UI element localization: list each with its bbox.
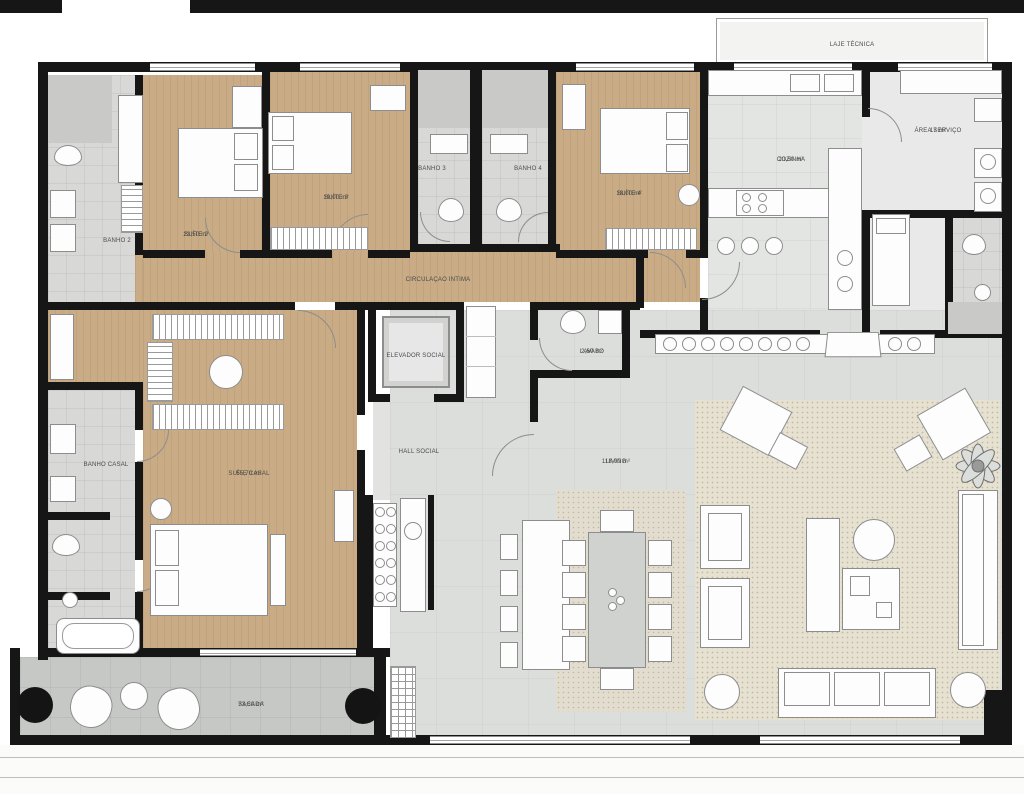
dining-chair (648, 604, 672, 630)
room-name: CIRCULAÇÃO ÍNTIMA (406, 276, 471, 284)
stool (717, 237, 735, 255)
basket (663, 337, 677, 351)
toilet-symbol (54, 145, 82, 166)
burner (758, 193, 767, 202)
pantry-shelves (466, 306, 496, 398)
cabinet (974, 98, 1002, 122)
room-area: 73,50 m² (238, 701, 263, 709)
wall (622, 302, 630, 378)
closet-casal-mid (152, 404, 284, 430)
closet-casal-left (147, 342, 173, 402)
stool (500, 534, 518, 560)
wall (548, 62, 556, 252)
window (300, 63, 400, 71)
wall (357, 450, 365, 655)
shower-banho-3 (418, 70, 470, 128)
sink-symbol (50, 224, 76, 252)
wall (556, 250, 648, 258)
planter-pot (17, 687, 53, 723)
window (576, 63, 694, 71)
wall (700, 62, 708, 258)
room-area: 23,50 m² (183, 231, 208, 239)
dining-chair (648, 572, 672, 598)
floor-plan: LAJE TÉCNICA BANHO 2 SUÍTE 2 23,50 m² SU… (0, 0, 1024, 794)
wall (1002, 62, 1012, 745)
wall (335, 302, 368, 310)
sink-symbol (50, 424, 76, 454)
kitchen-sink (824, 74, 854, 92)
wall (686, 250, 700, 258)
wall (984, 690, 1012, 740)
wall (368, 394, 390, 402)
dining-chair (648, 636, 672, 662)
balcony-table (120, 682, 148, 710)
dining-chair (562, 572, 586, 598)
wall (636, 252, 644, 308)
room-area: 118,00 m² (602, 458, 630, 466)
page-top-bar-right (190, 0, 1024, 13)
toilet-symbol (496, 198, 522, 222)
wall (135, 382, 143, 430)
stool (741, 237, 759, 255)
closet-casal-top (152, 314, 284, 340)
side-table (678, 184, 700, 206)
rack-hole (386, 575, 396, 585)
island-sink (837, 276, 853, 292)
wall (368, 250, 410, 258)
burner (758, 204, 767, 213)
toilet-symbol (560, 310, 586, 334)
room-name: BANHO 2 (103, 237, 131, 245)
toilet-symbol (438, 198, 464, 222)
pouf (950, 672, 986, 708)
wall (10, 735, 382, 745)
sink-symbol (598, 310, 622, 334)
wall (368, 302, 376, 402)
wall (530, 378, 538, 422)
stool (500, 606, 518, 632)
armchair-cushion (708, 586, 742, 640)
wall (240, 250, 332, 258)
plant-symbol (952, 440, 1004, 492)
washer-door (980, 154, 996, 170)
room-name: BANHO CASAL (84, 461, 129, 469)
wall (410, 244, 560, 252)
shower-banho-2 (48, 75, 112, 143)
dryer-door (980, 188, 996, 204)
dining-chair (648, 540, 672, 566)
stool (765, 237, 783, 255)
room-area: 19,00 m² (323, 194, 348, 202)
basket (888, 337, 902, 351)
rack-hole (375, 558, 385, 568)
toilet-symbol (962, 234, 986, 255)
wall (530, 302, 538, 340)
wall (410, 62, 418, 252)
wall (38, 302, 295, 310)
rack-hole (386, 507, 396, 517)
wall (38, 62, 48, 660)
closet-suite-3 (270, 227, 368, 250)
wall (530, 370, 630, 378)
closet-shelves (50, 314, 74, 380)
pillow (234, 164, 258, 191)
sink-symbol (430, 134, 468, 154)
dining-chair (562, 636, 586, 662)
table-decor (616, 596, 625, 605)
window (760, 736, 960, 744)
dining-chair (600, 668, 634, 690)
sink-symbol (974, 284, 991, 301)
sofa-seat (884, 672, 930, 706)
room-area: 55,70 m² (236, 470, 261, 478)
wardrobe-suite-2 (118, 95, 143, 183)
burner (742, 193, 751, 202)
rack-hole (375, 592, 385, 602)
bar-counter (400, 498, 426, 612)
basket (739, 337, 753, 351)
terrace-line (0, 757, 1024, 758)
wall (434, 394, 464, 402)
room-name: BANHO 3 (418, 165, 446, 173)
pillow (272, 145, 294, 170)
pillow (155, 530, 179, 566)
table-decor (876, 602, 892, 618)
wall (38, 512, 110, 520)
bed-bench (270, 534, 286, 606)
desk-suite-3 (370, 85, 406, 111)
page-top-bar-left (0, 0, 62, 13)
stool (500, 570, 518, 596)
desk-suite-4 (562, 84, 586, 130)
wall (470, 62, 482, 252)
dining-chair (562, 540, 586, 566)
bathtub-inner (62, 623, 134, 649)
room-name: LAJE TÉCNICA (830, 41, 875, 49)
ceiling-fan (150, 498, 172, 520)
planter-pot (345, 688, 381, 724)
shower-banho-4 (482, 70, 548, 128)
service-counter (900, 70, 1002, 94)
basket (758, 337, 772, 351)
wall (38, 382, 143, 390)
room-name: ELEVADOR SOCIAL (387, 352, 446, 360)
rack-hole (386, 524, 396, 534)
room-area: 20,50 m² (778, 156, 803, 164)
dining-chair (562, 604, 586, 630)
pillow (272, 116, 294, 141)
desk-suite-2 (232, 86, 262, 128)
window-suite-casal (200, 649, 356, 656)
basket (720, 337, 734, 351)
room-area: 17 m² (930, 127, 946, 135)
shelf-line (466, 366, 496, 367)
kitchen-sink (790, 74, 820, 92)
table-decor (850, 576, 870, 596)
wall (862, 210, 870, 338)
pillow (155, 570, 179, 606)
basket (682, 337, 696, 351)
bar-sink (404, 522, 422, 540)
shower-banho-servico (948, 302, 1002, 334)
wall (368, 302, 464, 310)
terrace-line (0, 777, 1024, 778)
table-decor (608, 588, 617, 597)
basket (907, 337, 921, 351)
island-sink (837, 250, 853, 266)
pillow (666, 112, 688, 140)
shelf-line (466, 336, 496, 337)
armchair-cushion (708, 513, 742, 561)
pillow (666, 144, 688, 172)
sink-symbol (490, 134, 528, 154)
planter-grid (390, 666, 416, 738)
room-name: HALL SOCIAL (399, 448, 440, 456)
rack-hole (375, 507, 385, 517)
basket (777, 337, 791, 351)
basket (701, 337, 715, 351)
console-table (825, 332, 882, 357)
closet-suite-2 (121, 185, 143, 233)
rack-hole (386, 541, 396, 551)
room-area: 18,00 m² (616, 190, 641, 198)
stool (500, 642, 518, 668)
chaise (806, 518, 840, 632)
wall (143, 250, 205, 258)
round-side-table (853, 519, 895, 561)
tv-cabinet (334, 490, 354, 542)
wall (365, 495, 373, 657)
sofa-seat (962, 494, 984, 646)
closet-suite-4 (605, 228, 697, 250)
table-decor (608, 602, 617, 611)
room-name: BANHO 4 (514, 165, 542, 173)
rack-hole (375, 575, 385, 585)
window (150, 63, 255, 71)
wall (135, 462, 143, 560)
wine-rack (373, 503, 397, 607)
toilet-symbol (52, 534, 80, 556)
window (430, 736, 690, 744)
sink-symbol (50, 190, 76, 218)
pillow (876, 218, 906, 234)
rack-hole (375, 524, 385, 534)
burner (742, 204, 751, 213)
sink-symbol (50, 476, 76, 502)
dining-chair (600, 510, 634, 532)
wall (456, 302, 464, 402)
wall (428, 495, 434, 610)
shower-head (62, 592, 78, 608)
pouf (704, 674, 740, 710)
wall (357, 310, 365, 415)
sofa-seat (784, 672, 830, 706)
sofa-seat (834, 672, 880, 706)
rack-hole (386, 558, 396, 568)
ottoman (209, 355, 243, 389)
terrace-strip (0, 745, 1024, 794)
rack-hole (375, 541, 385, 551)
rack-hole (386, 592, 396, 602)
basket (796, 337, 810, 351)
room-area: 2,60 m² (581, 348, 603, 356)
pillow (234, 133, 258, 160)
